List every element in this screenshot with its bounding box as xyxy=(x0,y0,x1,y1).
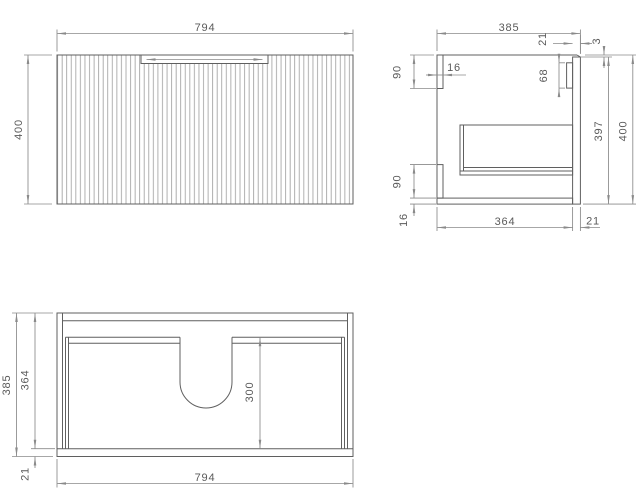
fluted-panel xyxy=(57,55,353,204)
side-view: 385 90 16 21 3 xyxy=(392,22,637,231)
dim-label-front-height: 400 xyxy=(13,119,25,140)
dim-rail-thickness: 16 xyxy=(426,62,466,75)
dim-plan-internal-depth: 364 xyxy=(20,313,56,449)
dim-label-plan-width: 794 xyxy=(195,472,216,484)
dim-side-depth: 385 xyxy=(437,22,580,53)
dim-label-bottom-panel-thickness: 16 xyxy=(398,213,410,227)
dim-label-bottom-rail-height: 90 xyxy=(392,175,404,189)
drawing-canvas: 794 400 385 xyxy=(0,0,643,494)
dim-label-cutout-depth: 300 xyxy=(244,382,256,403)
front-view: 794 400 xyxy=(13,22,353,204)
dim-bottom-panel-thickness: 16 xyxy=(398,204,436,227)
dim-label-internal-depth: 364 xyxy=(495,216,516,228)
bottom-panel xyxy=(437,198,573,204)
drawer-sides-plan xyxy=(66,337,345,449)
dim-label-plan-front-thickness: 21 xyxy=(20,467,32,481)
dim-plan-width: 794 xyxy=(57,459,353,488)
dim-label-top-rail-height: 90 xyxy=(392,65,404,79)
drawer-back-plan xyxy=(66,337,345,343)
dim-label-top-gap: 3 xyxy=(591,38,603,45)
dim-plan-front-thickness: 21 xyxy=(20,457,36,481)
dim-label-front-thickness-top: 21 xyxy=(537,32,549,46)
dim-label-overall-height: 400 xyxy=(618,121,630,142)
dim-label-front-thickness-bottom: 21 xyxy=(586,216,600,228)
bottom-hanging-rail xyxy=(437,165,443,199)
dim-label-hanging-rail-height: 68 xyxy=(538,69,550,83)
dim-hanging-rail-height: 68 xyxy=(538,56,565,94)
dim-front-thickness-top: 21 xyxy=(537,32,592,54)
drawer-box-section xyxy=(460,125,573,175)
dim-overall-height: 400 xyxy=(618,55,633,204)
dim-label-front-panel-height: 397 xyxy=(593,121,605,142)
dim-cutout-depth: 300 xyxy=(244,337,260,449)
dim-bottom-rail-height: 90 xyxy=(392,165,437,199)
plan-outline xyxy=(57,313,353,457)
dim-label-plan-internal-depth: 364 xyxy=(20,370,32,391)
pipe-cutout-u xyxy=(180,337,232,408)
plan-view: 385 364 21 300 794 xyxy=(1,313,353,488)
dim-label-rail-thickness: 16 xyxy=(447,62,461,74)
dim-internal-depth: 364 xyxy=(437,207,573,231)
dim-label-front-width: 794 xyxy=(195,22,216,34)
technical-drawing: 794 400 385 xyxy=(0,0,643,494)
dim-front-width: 794 xyxy=(57,22,353,52)
dim-label-plan-overall-depth: 385 xyxy=(1,375,13,396)
dim-front-thickness-bottom: 21 xyxy=(580,207,600,231)
front-fixing-rail xyxy=(567,63,573,88)
top-hanging-rail xyxy=(437,55,443,89)
drawer-front-panel xyxy=(573,57,581,204)
dim-label-side-depth: 385 xyxy=(499,22,520,34)
dim-top-rail-height: 90 xyxy=(392,55,437,89)
dim-front-height: 400 xyxy=(13,55,52,204)
